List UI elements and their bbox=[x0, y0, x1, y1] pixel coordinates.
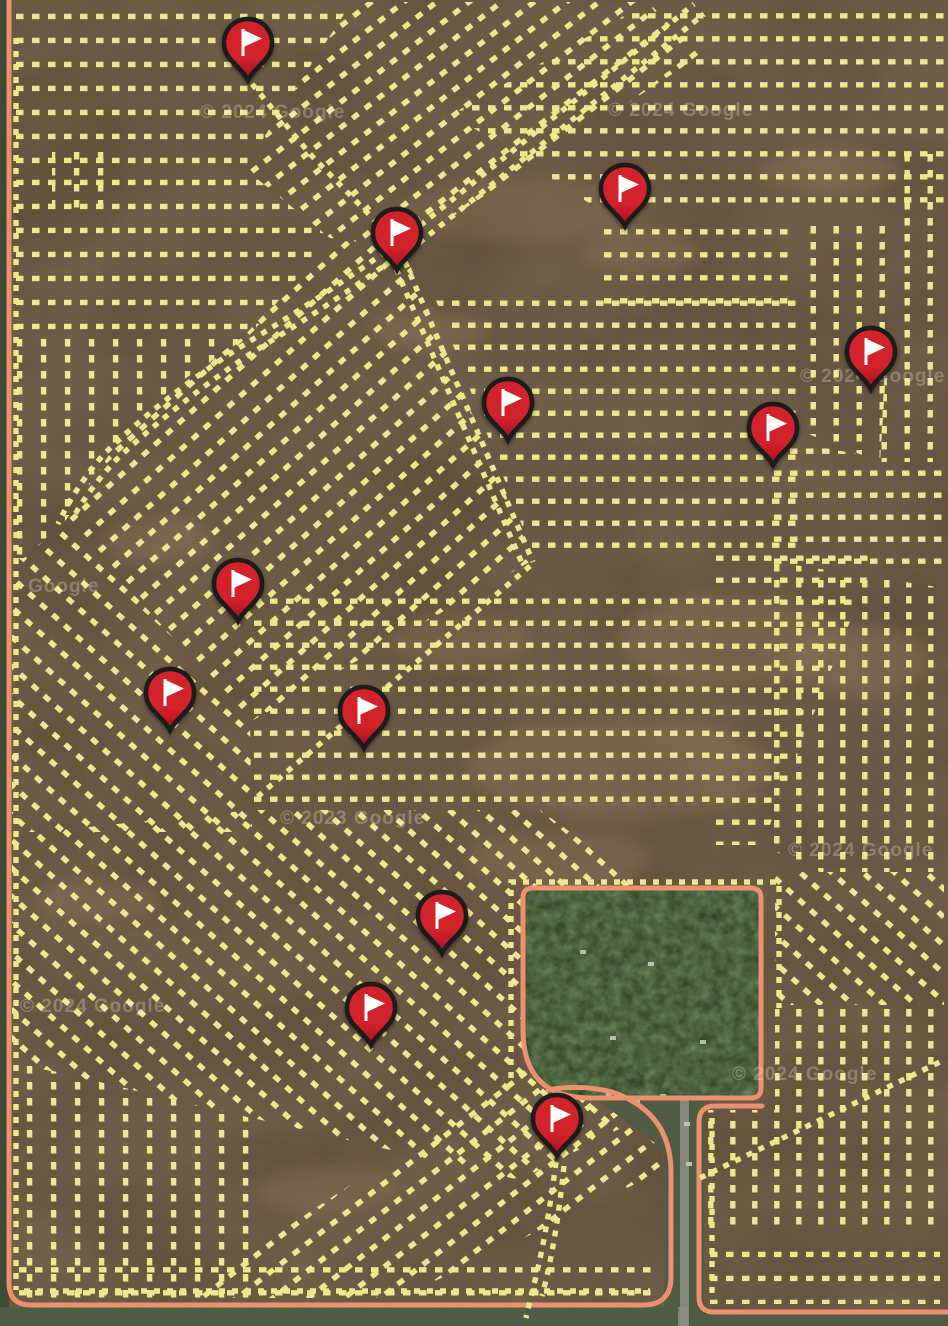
satellite-map[interactable]: © 2024 Google© 2024 Google© 2024 GoogleG… bbox=[0, 0, 948, 1326]
google-watermark: © 2024 Google bbox=[200, 102, 345, 123]
google-watermark: © 2024 Google bbox=[20, 996, 165, 1017]
google-watermark: © 2024 Google bbox=[732, 1064, 877, 1085]
google-watermark: Google bbox=[28, 576, 99, 597]
image-grain bbox=[0, 0, 948, 1326]
satellite-map-viewport[interactable]: © 2024 Google© 2024 Google© 2024 GoogleG… bbox=[0, 0, 948, 1326]
google-watermark: © 2024 Google bbox=[788, 840, 933, 861]
google-watermark: © 2024 Google bbox=[608, 100, 753, 121]
google-watermark: © 2023 Google bbox=[280, 808, 425, 829]
